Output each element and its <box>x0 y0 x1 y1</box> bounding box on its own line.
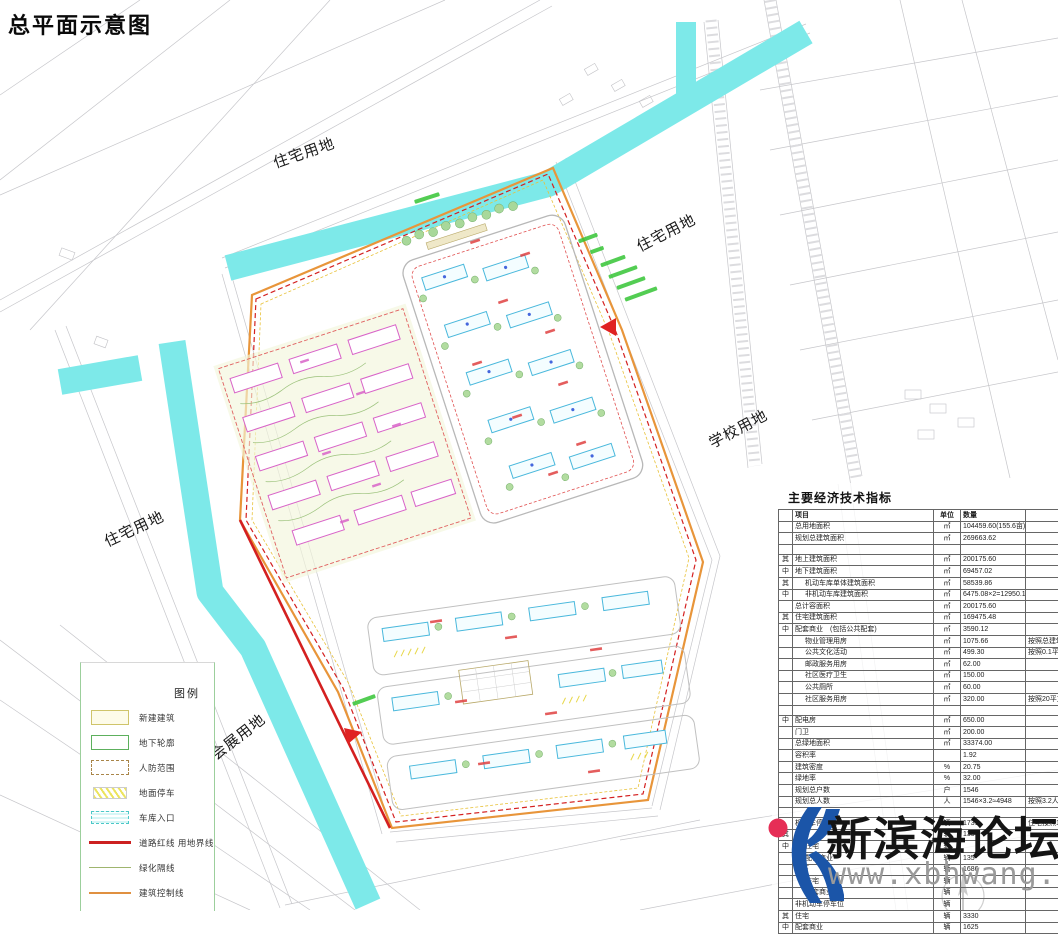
legend-items: 新建建筑地下轮廓人防范围地面停车车库入口道路红线 用地界线绿化隔线建筑控制线 <box>81 705 214 905</box>
indicators-row: 配套商业辆135 <box>779 853 1058 865</box>
indicators-row: 其住宅建筑面积㎡169475.48 <box>779 612 1058 624</box>
indicators-spacer-row <box>779 544 1058 554</box>
indicators-row: 公共文化活动㎡499.30按照0.1平方米/人计算 <box>779 647 1058 659</box>
indicators-row: 绿地率%32.00 <box>779 773 1058 785</box>
indicators-row: 建筑密度%20.75 <box>779 761 1058 773</box>
indicators-row: 社区服务用房㎡320.00按照20平方米/100户计算 <box>779 693 1058 705</box>
indicators-row: 中住宅辆 <box>779 841 1058 853</box>
indicators-row: 总计容面积㎡200175.60 <box>779 601 1058 613</box>
indicators-row: 中配套商业辆1625 <box>779 922 1058 934</box>
legend-item-label: 绿化隔线 <box>139 862 175 874</box>
indicators-row: 配套商业辆 <box>779 887 1058 899</box>
legend-item-label: 建筑控制线 <box>139 887 184 899</box>
page-title: 总平面示意图 <box>8 8 152 40</box>
legend-item-label: 车库入口 <box>139 812 175 824</box>
indicators-row: 门卫㎡200.00 <box>779 727 1058 739</box>
cyan-residential-zone-lower <box>367 576 701 811</box>
legend-item: 人防范围 <box>81 755 214 780</box>
legend-swatch-underground-icon <box>81 735 139 750</box>
legend-item: 新建建筑 <box>81 705 214 730</box>
legend-item-label: 道路红线 用地界线 <box>139 837 214 849</box>
indicators-spacer-row <box>779 705 1058 715</box>
indicators-row: 中地下建筑面积㎡69457.02 <box>779 566 1058 578</box>
indicators-row: 规划总户数户1546 <box>779 785 1058 797</box>
legend-item-label: 地下轮廓 <box>139 737 175 749</box>
legend-swatch-civil-defense-icon <box>81 760 139 775</box>
indicators-row: 社区医疗卫生㎡150.00 <box>779 670 1058 682</box>
legend-item-label: 地面停车 <box>139 787 175 799</box>
indicators-row: 其地上建筑面积㎡200175.60 <box>779 554 1058 566</box>
legend-item: 地下轮廓 <box>81 730 214 755</box>
indicators-row: 机动车停车位辆1731住宅按照1.0辆/100平方米计算 商业按照0.8辆/10… <box>779 818 1058 830</box>
legend-swatch-road-redline-icon <box>81 841 139 844</box>
legend-swatch-control-line-icon <box>81 892 139 894</box>
indicators-row: 总绿地面积㎡33374.00 <box>779 738 1058 750</box>
indicators-row: 公共厕所㎡60.00 <box>779 682 1058 694</box>
legend-item-label: 人防范围 <box>139 762 175 774</box>
indicators-row: 地下辆1686 <box>779 864 1058 876</box>
legend-swatch-new-building-icon <box>81 710 139 725</box>
legend-item-label: 新建建筑 <box>139 712 175 724</box>
legend-item: 建筑控制线 <box>81 880 214 905</box>
legend-panel: 图例 新建建筑地下轮廓人防范围地面停车车库入口道路红线 用地界线绿化隔线建筑控制… <box>80 662 215 911</box>
indicators-row: 物业管理用房㎡1075.66按照总建筑面积4%计算 <box>779 635 1058 647</box>
legend-item: 道路红线 用地界线 <box>81 830 214 855</box>
indicators-row: 中非机动车库建筑面积㎡6475.08×2=12950.16 <box>779 589 1058 601</box>
legend-swatch-garage-entry-icon <box>81 811 139 824</box>
legend-item: 车库入口 <box>81 805 214 830</box>
indicators-row: 非机动车停车位辆 <box>779 899 1058 911</box>
indicators-title: 主要经济技术指标 <box>772 485 1058 509</box>
indicators-spacer-row <box>779 808 1058 818</box>
legend-swatch-surface-parking-icon <box>81 787 139 799</box>
indicators-row: 邮政服务用房㎡62.00 <box>779 659 1058 671</box>
indicators-row: 中配套商业 (包括公共配套)㎡3590.12 <box>779 624 1058 636</box>
legend-item: 地面停车 <box>81 780 214 805</box>
indicators-row: 中配电房㎡650.00 <box>779 715 1058 727</box>
indicators-row: 规划总建筑面积㎡269663.62 <box>779 533 1058 545</box>
legend-swatch-green-line-icon <box>81 867 139 868</box>
indicators-row: 其机动车库单体建筑面积㎡58539.86 <box>779 577 1058 589</box>
indicators-row: 住宅辆 <box>779 876 1058 888</box>
site-plan-page: { "title": "总平面示意图", "colors": { "canal_… <box>0 0 1058 910</box>
indicators-panel: 主要经济技术指标 项目单位数量总用地面积㎡104459.60(155.6亩)规划… <box>772 483 1058 934</box>
indicators-table: 项目单位数量总用地面积㎡104459.60(155.6亩)规划总建筑面积㎡269… <box>778 509 1058 934</box>
indicators-header-row: 项目单位数量 <box>779 510 1058 522</box>
legend-item: 绿化隔线 <box>81 855 214 880</box>
indicators-row: 总用地面积㎡104459.60(155.6亩) <box>779 521 1058 533</box>
indicators-row: 其住宅辆3330 <box>779 911 1058 923</box>
legend-title: 图例 <box>81 663 214 705</box>
indicators-row: 容积率1.92 <box>779 750 1058 762</box>
offsite-buildings <box>59 63 974 439</box>
indicators-row: 规划总人数人1546×3.2≈4948按照3.2人/户计算 <box>779 796 1058 808</box>
indicators-row: 其地上辆135 <box>779 829 1058 841</box>
